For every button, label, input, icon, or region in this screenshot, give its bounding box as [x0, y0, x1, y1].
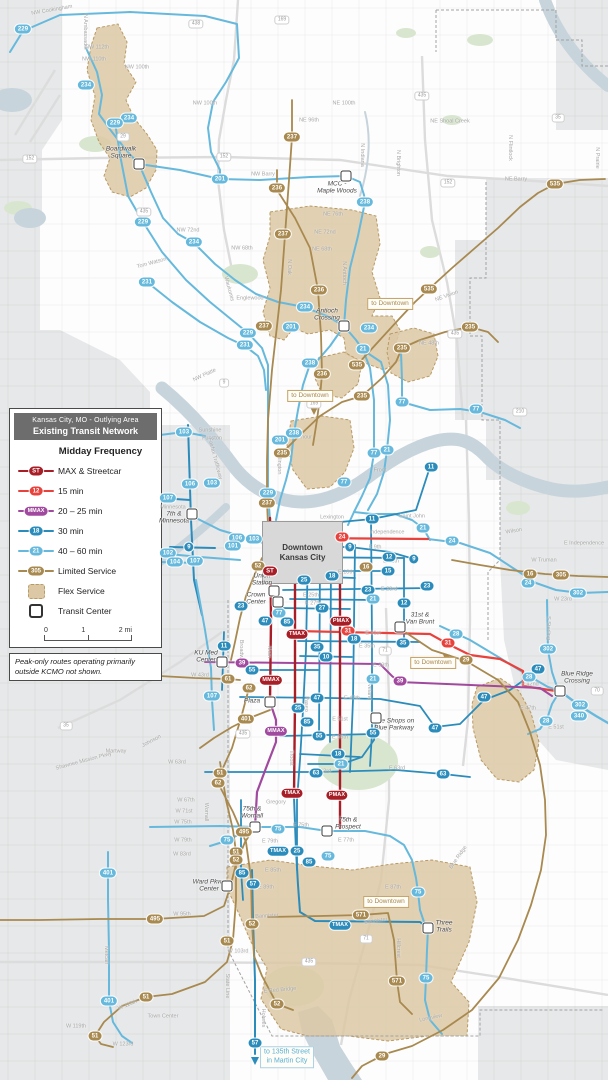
street-label: Blue Ridge — [449, 845, 469, 870]
transit-center-marker — [134, 159, 145, 170]
street-label: E 55th — [332, 735, 348, 741]
street-label: N Prairie — [593, 147, 599, 168]
legend-row-label: 20 – 25 min — [58, 506, 102, 516]
transit-center-marker — [555, 686, 566, 697]
legend-row: 1830 min — [14, 521, 157, 541]
route-badge-62: 62 — [212, 779, 225, 788]
highway-shield: 435 — [136, 208, 151, 217]
route-badge-237: 237 — [284, 133, 300, 142]
route-badge-9: 9 — [184, 543, 193, 552]
route-badge-47: 47 — [478, 693, 491, 702]
legend-row-label: 15 min — [58, 486, 84, 496]
route-badge-35: 35 — [397, 639, 410, 648]
route-badge-15: 15 — [382, 567, 395, 576]
scale-tick-label: 1 — [81, 627, 85, 634]
route-badge-77: 77 — [470, 405, 483, 414]
street-label: N Flintlock — [506, 135, 512, 161]
route-badge-231: 231 — [237, 341, 253, 350]
street-label: Lexington — [320, 515, 344, 521]
legend-title: Kansas City, MO - Outlying Area Existing… — [14, 413, 157, 440]
street-label: NE 76th — [323, 212, 343, 218]
route-badge-25: 25 — [292, 704, 305, 713]
street-label: W 115th — [118, 1000, 139, 1013]
route-badge-35: 35 — [311, 643, 324, 652]
street-label: Johnson — [142, 735, 163, 750]
route-badge-tmax: TMAX — [282, 789, 303, 798]
legend-row-label: Flex Service — [58, 586, 105, 596]
street-label: Wilson — [505, 528, 522, 536]
street-label: E 51st — [332, 717, 348, 723]
route-badge-21: 21 — [367, 595, 380, 604]
street-label: NE 48th — [419, 341, 439, 347]
route-badge-85: 85 — [303, 858, 316, 867]
route-badge-234: 234 — [297, 303, 313, 312]
legend-title-network: Existing Transit Network — [16, 426, 155, 436]
street-label: E Red Bridge — [263, 987, 296, 995]
street-label: Main — [265, 646, 271, 658]
street-label: W Truman — [531, 558, 556, 564]
highway-shield: 35 — [60, 722, 73, 731]
legend-row: MMAX20 – 25 min — [14, 501, 157, 521]
transit-center-marker — [187, 509, 198, 520]
highway-shield: 70 — [591, 687, 604, 696]
street-label: NE 100th — [333, 101, 356, 107]
street-label: Englewood — [236, 296, 263, 302]
transit-map: Downtown Kansas City Kansas City, MO - O… — [0, 0, 608, 1080]
route-badge-235: 235 — [274, 449, 290, 458]
street-label: NW Cookingham — [31, 5, 73, 18]
route-badge-235: 235 — [394, 344, 410, 353]
street-label: E 75th — [293, 823, 309, 829]
legend-route-badge-icon: 12 — [14, 490, 58, 493]
route-badge-27: 27 — [316, 604, 329, 613]
route-badge-62: 62 — [243, 684, 256, 693]
street-label: Gregory — [266, 800, 286, 806]
route-badge-234: 234 — [78, 81, 94, 90]
route-badge-12: 12 — [383, 553, 396, 562]
route-badge-29: 29 — [460, 656, 473, 665]
route-badge-51: 51 — [89, 1032, 102, 1041]
route-badge-85: 85 — [301, 718, 314, 727]
route-badge-75: 75 — [420, 974, 433, 983]
route-badge-55: 55 — [246, 666, 259, 675]
street-label: E 39th — [373, 663, 389, 669]
highway-shield: 210 — [512, 408, 527, 417]
route-badge-107: 107 — [204, 692, 220, 701]
highway-shield: 169 — [274, 16, 289, 25]
route-badge-238: 238 — [286, 429, 302, 438]
street-label: Town Center — [148, 1014, 179, 1020]
route-badge-401: 401 — [100, 869, 116, 878]
street-label: Bannister — [364, 918, 388, 927]
route-badge-63: 63 — [310, 769, 323, 778]
route-badge-305: 305 — [553, 571, 569, 580]
route-badge-23: 23 — [362, 586, 375, 595]
legend-row-label: Limited Service — [58, 566, 116, 576]
route-badge-11: 11 — [366, 515, 379, 524]
highway-shield: 71 — [360, 935, 373, 944]
place-label: MCC - Maple Woods — [317, 181, 357, 196]
street-label: E 87th — [385, 885, 401, 891]
highway-shield: 9 — [219, 379, 229, 388]
street-label: NW 110th — [82, 57, 106, 63]
place-label: Crown Center — [246, 592, 266, 607]
transit-center-marker — [265, 697, 276, 708]
route-badge-9: 9 — [409, 555, 418, 564]
street-label: Bannister — [255, 913, 279, 920]
route-badge-571: 571 — [353, 911, 369, 920]
street-label: E 47th — [520, 706, 536, 712]
route-badge-302: 302 — [540, 645, 556, 654]
route-badge-401: 401 — [101, 997, 117, 1006]
street-label: NW 112th — [85, 45, 109, 51]
highway-shield: 35 — [552, 114, 565, 123]
route-badge-77: 77 — [273, 609, 286, 618]
street-label: W 43rd — [191, 673, 209, 679]
route-badge-24: 24 — [336, 533, 349, 542]
street-label: NW Barry — [251, 172, 275, 178]
transit-center-marker — [371, 713, 382, 724]
route-badge-47: 47 — [259, 617, 272, 626]
map-overlay: Downtown Kansas City Kansas City, MO - O… — [0, 0, 608, 1080]
legend-row: Transit Center — [14, 601, 157, 621]
transit-center-marker — [269, 586, 280, 597]
route-badge-18: 18 — [348, 635, 361, 644]
street-label: E 79th — [262, 839, 278, 845]
destination-label: to Downtown — [287, 390, 333, 402]
legend-rows: STMAX & Streetcar1215 minMMAX20 – 25 min… — [14, 461, 157, 621]
street-label: N Brighton — [394, 150, 400, 176]
destination-label: to Downtown — [367, 298, 413, 310]
route-badge-237: 237 — [275, 230, 291, 239]
route-badge-mmax: MMAX — [265, 727, 287, 736]
route-badge-18: 18 — [332, 750, 345, 759]
route-badge-340: 340 — [571, 712, 587, 721]
route-badge-24: 24 — [522, 579, 535, 588]
legend-row-label: 30 min — [58, 526, 84, 536]
route-badge-85: 85 — [236, 869, 249, 878]
route-badge-28: 28 — [523, 673, 536, 682]
route-badge-24: 24 — [446, 537, 459, 546]
route-badge-21: 21 — [357, 345, 370, 354]
place-label: KU Med Center — [194, 650, 217, 665]
highway-shield: 435 — [301, 958, 316, 967]
route-badge-229: 229 — [15, 25, 31, 34]
street-label: E 42nd — [521, 682, 538, 688]
legend-row-label: Transit Center — [58, 606, 112, 616]
legend-route-badge-icon: MMAX — [14, 510, 58, 513]
legend-route-badge-icon: ST — [14, 470, 58, 473]
street-label: N Oak — [285, 259, 291, 275]
street-label: N Indiana — [358, 143, 364, 167]
route-badge-47: 47 — [429, 724, 442, 733]
street-label: W 75th — [174, 820, 191, 826]
street-label: W 23rd — [554, 597, 572, 603]
route-badge-103: 103 — [246, 535, 262, 544]
route-badge-16: 16 — [360, 563, 373, 572]
street-label: W 119th — [66, 1024, 86, 1030]
route-badge-101: 101 — [225, 542, 241, 551]
highway-shield: 152 — [440, 179, 455, 188]
route-badge-234: 234 — [361, 324, 377, 333]
route-badge-85: 85 — [281, 618, 294, 627]
route-badge-201: 201 — [212, 175, 228, 184]
route-badge-st: ST — [263, 567, 277, 576]
street-label: NE Shoal Creek — [430, 119, 469, 125]
street-label: E 25th — [303, 593, 319, 599]
street-label: Shawnee Mission Pkwy — [55, 752, 112, 772]
route-badge-57: 57 — [249, 1039, 262, 1048]
route-badge-229: 229 — [260, 489, 276, 498]
highway-shield: 435 — [447, 330, 462, 339]
route-badge-495: 495 — [147, 915, 163, 924]
route-badge-231: 231 — [139, 278, 155, 287]
route-badge-236: 236 — [311, 286, 327, 295]
street-label: NW 68th — [231, 246, 252, 252]
route-badge-10: 10 — [320, 653, 333, 662]
route-badge-201: 201 — [283, 323, 299, 332]
route-badge-103: 103 — [204, 479, 220, 488]
street-label: State Line — [223, 974, 229, 999]
street-label: W 95th — [173, 912, 190, 918]
highway-shield: 438 — [188, 20, 203, 29]
route-badge-535: 535 — [421, 285, 437, 294]
route-badge-18: 18 — [326, 572, 339, 581]
highway-shield: 152 — [22, 155, 37, 164]
street-label: E 9th — [369, 545, 382, 551]
route-badge-229: 229 — [240, 329, 256, 338]
route-badge-11: 11 — [425, 463, 438, 472]
street-label: E 51st — [548, 725, 564, 731]
route-badge-535: 535 — [349, 361, 365, 370]
transit-center-marker — [217, 657, 228, 668]
destination-label: to 135th Street in Martin City — [260, 1046, 314, 1068]
route-badge-28: 28 — [450, 630, 463, 639]
street-label: Longview — [419, 1014, 443, 1024]
legend-route-badge-icon: 18 — [14, 530, 58, 533]
place-label: Boardwalk Square — [106, 146, 136, 161]
transit-center-marker — [341, 171, 352, 182]
street-label: E 31st — [365, 631, 381, 637]
street-label: E 85th — [265, 868, 281, 874]
street-label: E 77th — [338, 838, 354, 844]
street-label: W 83rd — [173, 852, 191, 858]
route-badge-21: 21 — [367, 675, 380, 684]
place-label: Antioch Crossing — [314, 308, 340, 323]
route-badge-495: 495 — [236, 828, 252, 837]
route-badge-16: 16 — [524, 570, 537, 579]
route-badge-571: 571 — [389, 977, 405, 986]
highway-shield: 71 — [379, 647, 392, 656]
destination-label: to Downtown — [410, 657, 456, 669]
highway-shield: 152 — [216, 153, 231, 162]
street-label: NW 72nd — [177, 228, 200, 234]
route-badge-25: 25 — [298, 576, 311, 585]
route-badge-51: 51 — [140, 993, 153, 1002]
route-badge-23: 23 — [235, 602, 248, 611]
route-badge-47: 47 — [532, 665, 545, 674]
route-badge-47: 47 — [311, 694, 324, 703]
legend-panel: Kansas City, MO - Outlying Area Existing… — [9, 408, 162, 648]
place-label: Three Trails — [436, 920, 453, 935]
street-label: E 35th — [359, 644, 375, 650]
route-badge-52: 52 — [246, 920, 259, 929]
legend-route-badge-icon: 21 — [14, 550, 58, 553]
route-badge-535: 535 — [547, 180, 563, 189]
street-label: W 123rd — [113, 1042, 134, 1048]
street-label: NE 68th — [312, 247, 332, 253]
street-label: Hillcrest — [394, 938, 400, 958]
route-badge-63: 63 — [437, 770, 450, 779]
legend-title-area: Kansas City, MO - Outlying Area — [16, 417, 155, 424]
route-badge-75: 75 — [272, 825, 285, 834]
route-badge-75: 75 — [412, 888, 425, 897]
street-label: Independence — [370, 530, 405, 536]
route-badge-75: 75 — [221, 836, 234, 845]
highway-shield: 435 — [414, 92, 429, 101]
route-badge-238: 238 — [357, 198, 373, 207]
destination-label: to Downtown — [363, 896, 409, 908]
transit-center-marker — [339, 321, 350, 332]
street-label: W 103rd — [228, 949, 249, 955]
route-badge-61: 61 — [222, 675, 235, 684]
route-badge-11: 11 — [218, 642, 231, 651]
street-label: Saint John — [399, 514, 425, 520]
route-badge-104: 104 — [167, 558, 183, 567]
route-badge-9: 9 — [345, 543, 354, 552]
street-label: E 89th — [258, 885, 274, 891]
street-label: Fairfax Trafficway — [206, 438, 222, 481]
highway-shield: 29 — [117, 133, 130, 142]
street-label: NW 100th — [193, 101, 217, 107]
route-badge-39: 39 — [394, 677, 407, 686]
route-badge-107: 107 — [160, 494, 176, 503]
route-badge-236: 236 — [314, 370, 330, 379]
route-badge-52: 52 — [230, 856, 243, 865]
legend-row-label: MAX & Streetcar — [58, 466, 121, 476]
route-badge-234: 234 — [121, 114, 137, 123]
route-badge-107: 107 — [187, 557, 203, 566]
map-note: Peak-only routes operating primarily out… — [9, 653, 162, 681]
route-badge-mmax: MMAX — [260, 676, 282, 685]
legend-row: 1215 min — [14, 481, 157, 501]
scale-bar: 012 mi — [44, 627, 132, 641]
route-badge-21: 21 — [335, 760, 348, 769]
street-label: E 47th — [344, 696, 360, 702]
legend-route-badge-icon: 305 — [14, 570, 58, 573]
street-label: E Independence — [564, 541, 604, 547]
highway-shield: 435 — [235, 730, 250, 739]
route-badge-57: 57 — [247, 880, 260, 889]
street-label: E 23rd — [381, 587, 397, 593]
route-badge-51: 51 — [221, 937, 234, 946]
legend-section-title: Midday Frequency — [14, 440, 157, 461]
route-badge-55: 55 — [313, 732, 326, 741]
transit-center-marker — [395, 622, 406, 633]
route-badge-102: 102 — [160, 549, 176, 558]
route-badge-201: 201 — [272, 436, 288, 445]
street-label: W 71st — [175, 809, 192, 815]
route-badge-77: 77 — [396, 398, 409, 407]
legend-flex-area-icon — [14, 584, 58, 599]
route-badge-tmax: TMAX — [330, 921, 351, 930]
street-label: E 63rd — [389, 766, 405, 772]
street-label: S Sterling — [544, 616, 550, 640]
street-label: NE Barry — [505, 177, 527, 183]
route-badge-77: 77 — [338, 478, 351, 487]
route-badge-pmax: PMAX — [330, 617, 351, 626]
legend-transit-center-icon — [14, 604, 58, 618]
route-badge-tmax: TMAX — [268, 847, 289, 856]
route-badge-229: 229 — [107, 119, 123, 128]
street-label: NW 100th — [125, 65, 149, 71]
route-badge-pmax: PMAX — [326, 791, 347, 800]
street-label: Sunshine — [199, 428, 222, 434]
place-label: Blue Ridge Crossing — [561, 671, 593, 686]
transit-center-marker — [222, 881, 233, 892]
route-badge-23: 23 — [421, 582, 434, 591]
route-badge-21: 21 — [417, 524, 430, 533]
route-badge-103: 103 — [176, 428, 192, 437]
route-badge-237: 237 — [259, 499, 275, 508]
street-label: W 79th — [174, 838, 191, 844]
street-label: Front — [374, 468, 387, 474]
route-badge-229: 229 — [135, 218, 151, 227]
street-label: Metcalf — [102, 946, 108, 964]
legend-row: STMAX & Streetcar — [14, 461, 157, 481]
route-badge-106: 106 — [182, 480, 198, 489]
scale-line — [44, 635, 132, 641]
place-label: 75th & Wornall — [241, 806, 263, 821]
route-badge-236: 236 — [269, 184, 285, 193]
route-badge-234: 234 — [186, 238, 202, 247]
route-badge-52: 52 — [271, 1000, 284, 1009]
transit-center-marker — [423, 923, 434, 934]
street-label: N Antioch — [340, 261, 346, 285]
scale-labels: 012 mi — [44, 627, 132, 634]
route-badge-238: 238 — [302, 359, 318, 368]
street-label: Martway — [106, 749, 127, 755]
street-label: W 63rd — [168, 760, 186, 766]
street-label: Waukomis — [222, 276, 234, 302]
route-badge-302: 302 — [570, 589, 586, 598]
legend-row: Flex Service — [14, 581, 157, 601]
route-badge-235: 235 — [462, 323, 478, 332]
scale-tick-label: 0 — [44, 627, 48, 634]
place-label: Plaza — [244, 697, 260, 704]
route-badge-55: 55 — [367, 729, 380, 738]
street-label: Troost — [287, 750, 293, 765]
street-label: NW Platte — [193, 368, 218, 383]
place-label: 31st & Van Brunt — [406, 612, 435, 627]
transit-center-marker — [322, 826, 333, 837]
street-label: NE Vivion — [435, 290, 459, 303]
route-badge-77: 77 — [368, 449, 381, 458]
route-badge-302: 302 — [572, 701, 588, 710]
place-label: 75th & Prospect — [335, 817, 361, 832]
legend-row-label: 40 – 60 min — [58, 546, 102, 556]
route-badge-29: 29 — [376, 1052, 389, 1061]
street-label: Holmes — [259, 1009, 265, 1028]
street-label: Tom Watson — [137, 257, 168, 270]
route-badge-75: 75 — [322, 852, 335, 861]
route-badge-401: 401 — [238, 715, 254, 724]
route-badge-237: 237 — [256, 322, 272, 331]
route-badge-28: 28 — [540, 717, 553, 726]
transit-center-marker — [273, 597, 284, 608]
street-label: E 18th — [338, 570, 354, 576]
legend-row: 305Limited Service — [14, 561, 157, 581]
